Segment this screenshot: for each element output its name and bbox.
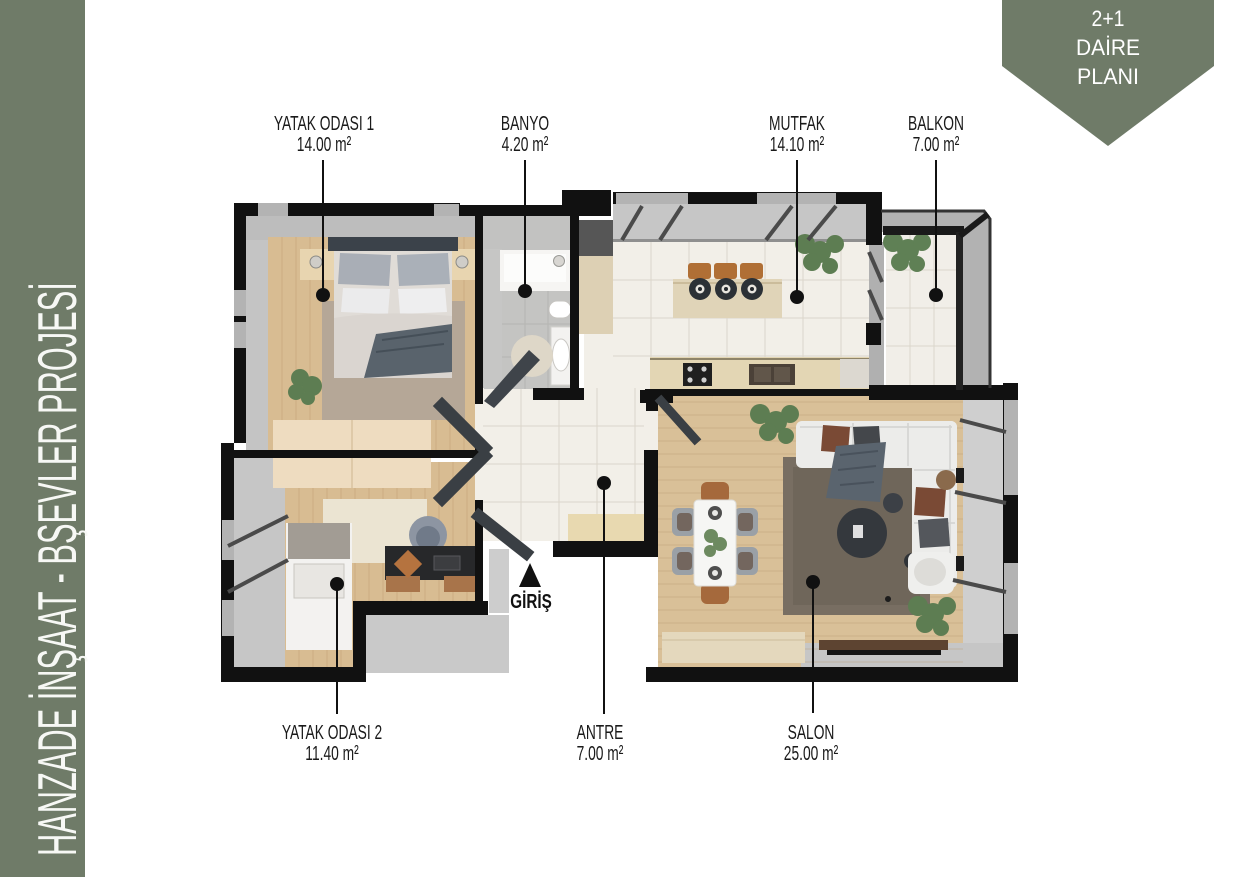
svg-text:MUTFAK: MUTFAK [769, 111, 825, 134]
svg-text:7.00 m²: 7.00 m² [577, 741, 624, 764]
svg-text:25.00 m²: 25.00 m² [784, 741, 839, 764]
svg-text:SALON: SALON [788, 720, 835, 743]
svg-text:HANZADE İNŞAAT - BŞEVLER PROJE: HANZADE İNŞAAT - BŞEVLER PROJESİ [28, 282, 88, 856]
svg-text:4.20 m²: 4.20 m² [502, 132, 549, 155]
svg-text:11.40 m²: 11.40 m² [305, 741, 359, 764]
svg-text:YATAK ODASI 2: YATAK ODASI 2 [282, 720, 382, 743]
svg-text:DAİRE: DAİRE [1076, 35, 1140, 60]
svg-text:14.00 m²: 14.00 m² [297, 132, 352, 155]
svg-text:7.00 m²: 7.00 m² [913, 132, 960, 155]
svg-text:BANYO: BANYO [501, 111, 549, 134]
svg-text:GİRİŞ: GİRİŞ [510, 590, 551, 613]
svg-text:14.10 m²: 14.10 m² [770, 132, 825, 155]
svg-text:BALKON: BALKON [908, 111, 964, 134]
svg-text:PLANI: PLANI [1077, 64, 1139, 89]
svg-text:YATAK ODASI 1: YATAK ODASI 1 [274, 111, 374, 134]
svg-text:2+1: 2+1 [1092, 6, 1125, 31]
svg-text:ANTRE: ANTRE [577, 720, 624, 743]
